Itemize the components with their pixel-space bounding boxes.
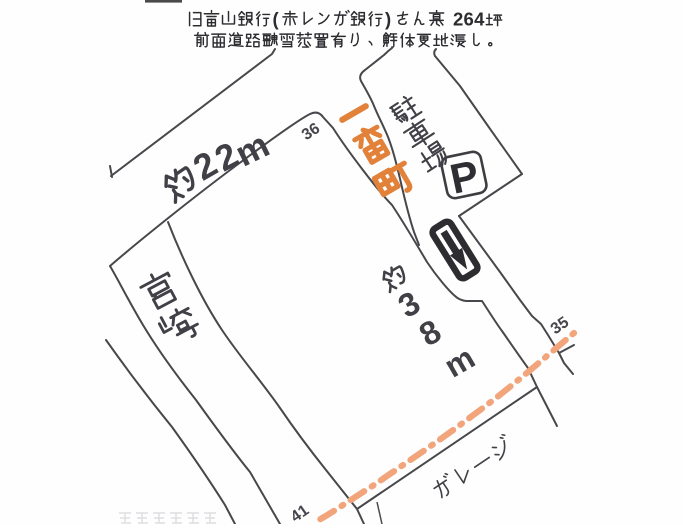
svg-text:6: 6 [464, 9, 474, 30]
svg-text:2: 2 [453, 9, 463, 30]
svg-text:4: 4 [474, 9, 485, 30]
svg-text:): ) [385, 9, 391, 30]
svg-text:(: ( [273, 9, 280, 30]
